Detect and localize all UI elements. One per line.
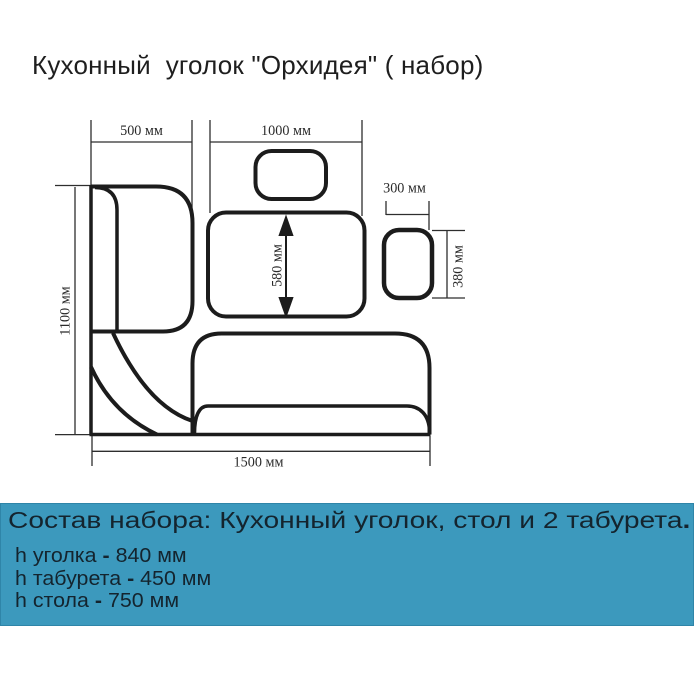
svg-text:300 мм: 300 мм [383, 181, 426, 197]
svg-text:580 мм: 580 мм [270, 244, 286, 287]
svg-text:500 мм: 500 мм [120, 123, 163, 139]
svg-text:380 мм: 380 мм [451, 245, 467, 288]
svg-text:1100 мм: 1100 мм [58, 286, 74, 335]
svg-text:1500 мм: 1500 мм [234, 455, 284, 471]
svg-text:1000 мм: 1000 мм [261, 123, 311, 139]
